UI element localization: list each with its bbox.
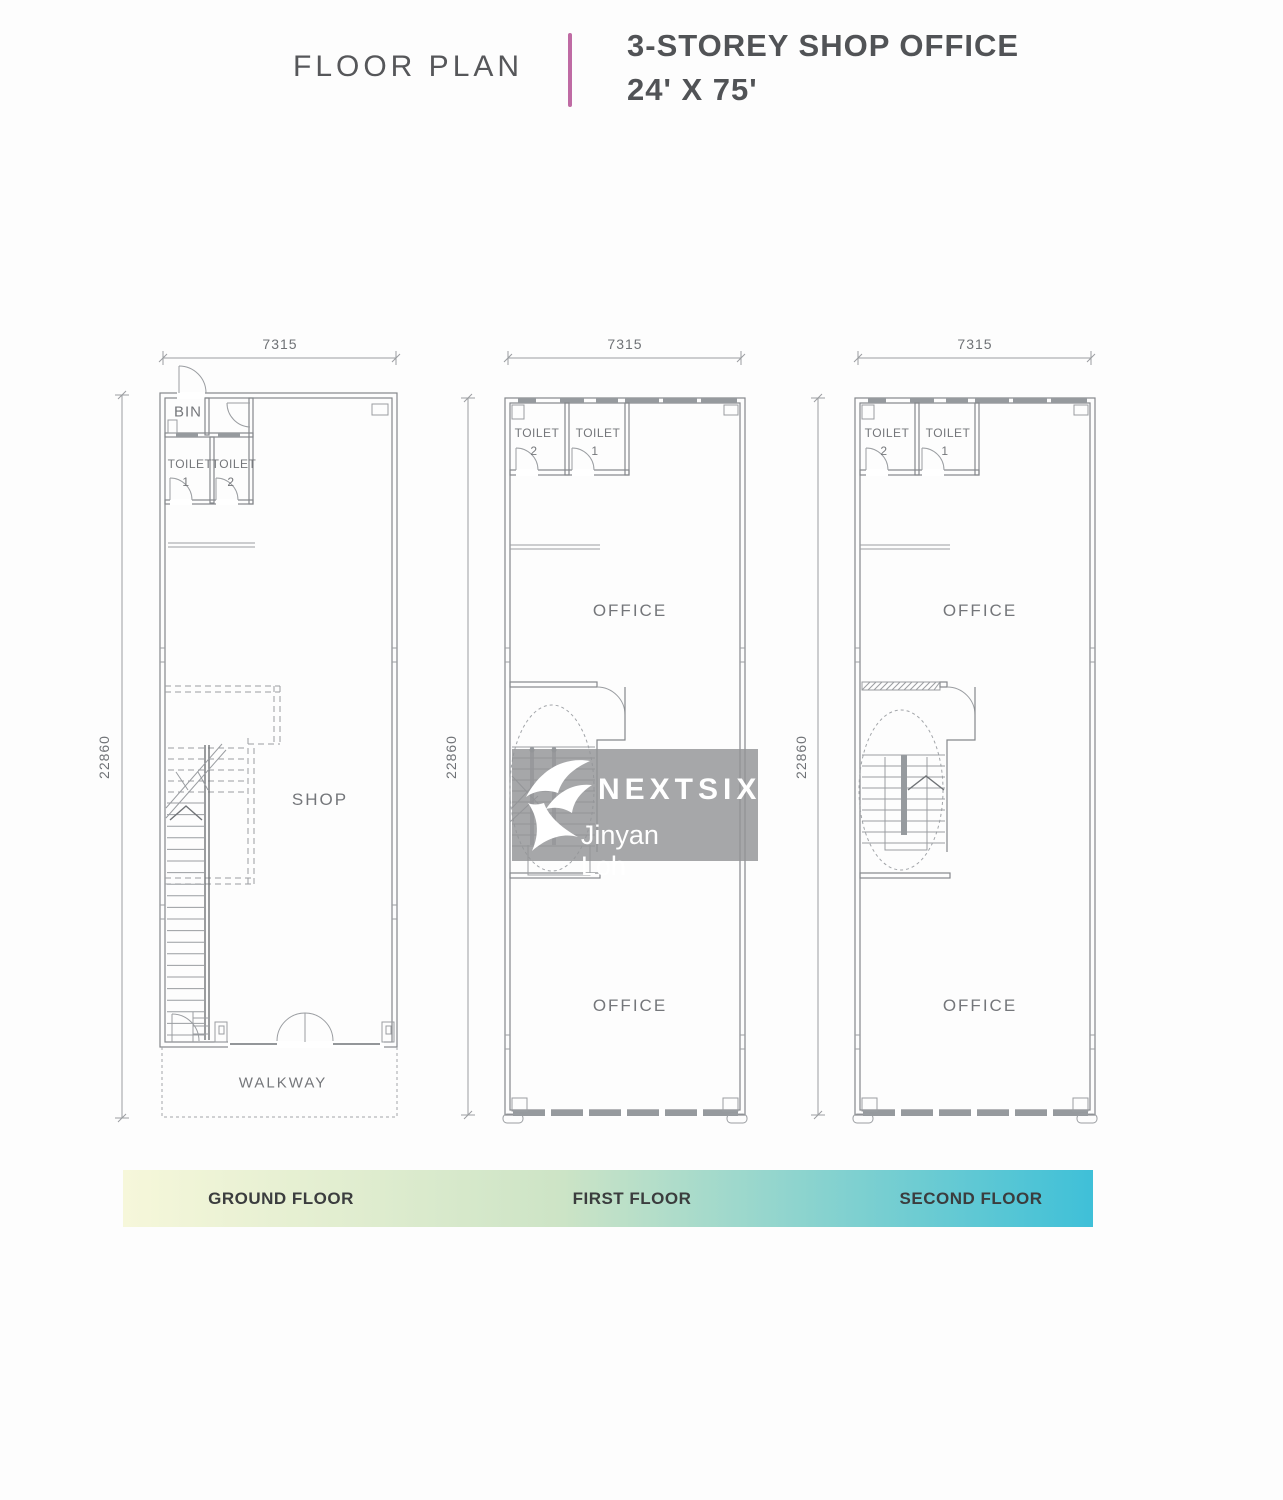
gf-shop-label: SHOP	[292, 790, 348, 810]
gf-toilet2-num: 2	[227, 475, 234, 489]
ff-toilet1-label: TOILET	[576, 426, 621, 440]
watermark: NEXTSIX Jinyan Loh	[512, 749, 758, 861]
sf-depth-dim: 22860	[793, 735, 809, 779]
ff-office-upper-label: OFFICE	[593, 601, 667, 621]
ff-toilet2-label: TOILET	[515, 426, 560, 440]
sf-office-upper-label: OFFICE	[943, 601, 1017, 621]
watermark-agent: Jinyan Loh	[581, 820, 704, 882]
gf-depth-dim: 22860	[96, 735, 112, 779]
gf-width-dim: 7315	[262, 336, 297, 352]
ff-toilet1-num: 1	[591, 444, 598, 458]
ff-office-lower-label: OFFICE	[593, 996, 667, 1016]
watermark-brand: NEXTSIX	[598, 773, 761, 807]
ground-floor-linework	[115, 351, 400, 1122]
gf-toilet1-num: 1	[182, 475, 189, 489]
sf-toilet1-num: 1	[941, 444, 948, 458]
sf-toilet2-num: 2	[880, 444, 887, 458]
legend-first-floor: FIRST FLOOR	[573, 1189, 692, 1209]
gf-walkway-label: WALKWAY	[239, 1075, 327, 1092]
ff-toilet2-num: 2	[530, 444, 537, 458]
gf-bin-label: BIN	[174, 404, 202, 421]
floor-legend-bar: GROUND FLOOR FIRST FLOOR SECOND FLOOR	[123, 1170, 1093, 1227]
sf-office-lower-label: OFFICE	[943, 996, 1017, 1016]
legend-ground-floor: GROUND FLOOR	[208, 1189, 354, 1209]
ff-width-dim: 7315	[607, 336, 642, 352]
ff-depth-dim: 22860	[443, 735, 459, 779]
floor-plan-page: FLOOR PLAN 3-STOREY SHOP OFFICE 24' X 75…	[0, 0, 1283, 1500]
gf-toilet1-label: TOILET	[168, 457, 213, 471]
legend-second-floor: SECOND FLOOR	[900, 1189, 1043, 1209]
sf-toilet2-label: TOILET	[865, 426, 910, 440]
sf-toilet1-label: TOILET	[926, 426, 971, 440]
gf-toilet2-label: TOILET	[212, 457, 257, 471]
sf-width-dim: 7315	[957, 336, 992, 352]
